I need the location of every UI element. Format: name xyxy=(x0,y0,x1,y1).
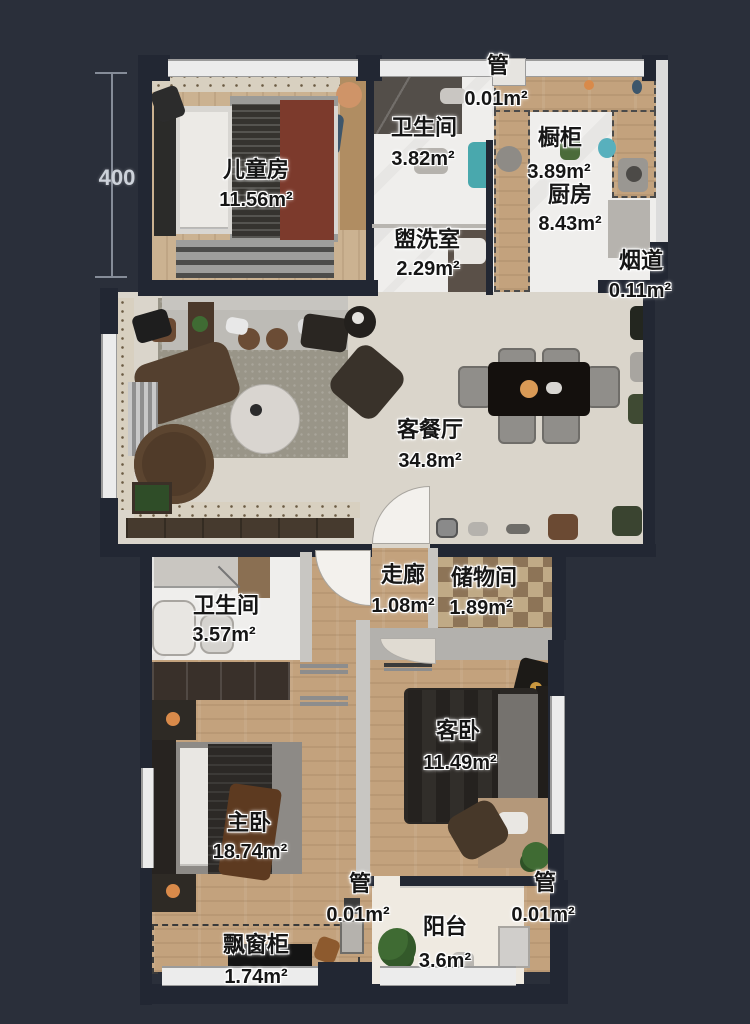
label-living-dining-area: 34.8m² xyxy=(398,451,461,471)
coffee-table-item xyxy=(250,404,262,416)
dimension-tick-bottom xyxy=(95,276,127,278)
wall-storage-right xyxy=(552,548,566,640)
armchair-top xyxy=(300,313,350,353)
kitchen-small-table xyxy=(496,146,522,172)
balcony-washer xyxy=(498,926,530,968)
wall-living-left-top xyxy=(100,288,118,334)
window-top-children xyxy=(168,59,358,77)
master-bed-headboard xyxy=(152,740,176,874)
master-wardrobe xyxy=(152,662,290,700)
wall-children-bath-divider xyxy=(366,70,374,282)
label-pipe-right-area: 0.01m² xyxy=(511,905,574,925)
balcony-door-gap xyxy=(374,876,400,888)
kitchen-cabinet-left xyxy=(494,110,530,292)
label-flue-area: 0.11m² xyxy=(609,281,671,301)
wall-children-bottom xyxy=(138,280,378,296)
label-flue-name: 烟道 xyxy=(619,250,663,272)
label-balcony-area: 3.6m² xyxy=(419,951,471,971)
label-washroom-name: 盥洗室 xyxy=(394,229,460,251)
label-cabinet-area: 3.89m² xyxy=(527,162,590,182)
dining-plate xyxy=(546,382,562,394)
corridor-shelf-2 xyxy=(300,696,348,706)
label-pipe-right-name: 管 xyxy=(534,872,556,894)
decor-basket xyxy=(468,522,488,536)
children-wardrobe xyxy=(176,240,334,278)
label-bathroom-bottom-area: 3.57m² xyxy=(192,625,255,645)
label-balcony-name: 阳台 xyxy=(423,916,467,938)
label-guest-bedroom-area: 11.49m² xyxy=(423,753,496,773)
master-bed-pillows xyxy=(180,748,210,866)
label-washroom-area: 2.29m² xyxy=(396,259,459,279)
wall-living-right xyxy=(643,292,655,546)
window-living-left xyxy=(101,334,117,498)
decor-bench xyxy=(548,514,578,540)
dimension-label: 400 xyxy=(99,165,136,191)
window-master-left xyxy=(141,768,154,868)
label-bay-window-area: 1.74m² xyxy=(224,967,287,987)
floor-plan-canvas: 400 xyxy=(0,0,750,1024)
dining-chair-right xyxy=(586,366,620,408)
lamp-bottom xyxy=(166,884,180,898)
bathtub xyxy=(152,600,196,656)
guest-shelf-2 xyxy=(384,663,432,671)
label-pipe-mid-name: 管 xyxy=(349,873,371,895)
label-guest-bedroom-name: 客卧 xyxy=(436,720,480,742)
label-living-dining-name: 客餐厅 xyxy=(397,419,463,441)
label-bathroom-top-name: 卫生间 xyxy=(391,117,457,139)
wall-washroom-kitchen-divider xyxy=(486,140,493,295)
tv-console xyxy=(126,518,354,538)
wall-left-top-block xyxy=(138,70,152,296)
label-pipe-top-area: 0.01m² xyxy=(464,89,527,109)
side-table-item xyxy=(352,312,364,324)
label-pipe-top-name: 管 xyxy=(487,55,509,77)
label-pipe-mid-area: 0.01m² xyxy=(326,905,389,925)
counter-item-orange xyxy=(584,80,594,90)
bathroom-top-sink xyxy=(440,88,466,104)
label-kitchen-area: 8.43m² xyxy=(538,214,601,234)
wall-balcony-right xyxy=(550,880,568,992)
stool-2 xyxy=(266,328,288,350)
label-corridor-area: 1.08m² xyxy=(371,596,434,616)
wall-living-bottom-right xyxy=(430,544,656,557)
wall-bottom-pier xyxy=(318,962,372,990)
label-master-bedroom-area: 18.74m² xyxy=(213,842,288,862)
coffee-table xyxy=(230,384,300,454)
label-cabinet-name: 橱柜 xyxy=(538,127,582,149)
wall-kitchen-right-outer xyxy=(656,60,668,256)
label-storage-name: 储物间 xyxy=(451,567,517,589)
dimension-tick-top xyxy=(95,72,127,74)
lamp-top xyxy=(166,712,180,726)
counter-item-blue xyxy=(632,80,642,94)
label-bathroom-top-area: 3.82m² xyxy=(391,149,454,169)
corridor-shelf-1 xyxy=(300,664,348,674)
label-bay-window-name: 飘窗柜 xyxy=(223,934,289,956)
label-children-room-name: 儿童房 xyxy=(223,159,289,181)
window-guest-right xyxy=(550,696,565,834)
dining-bowl xyxy=(520,380,538,398)
label-storage-area: 1.89m² xyxy=(449,598,512,618)
bathroom-cabinet xyxy=(238,556,270,598)
balcony-plant xyxy=(378,928,416,968)
console-plant xyxy=(192,316,208,332)
dining-table xyxy=(488,362,590,416)
living-plant-box xyxy=(132,482,172,514)
dining-chair-left xyxy=(458,366,492,408)
kitchen-kettle xyxy=(598,138,616,158)
wall-living-left-bottom xyxy=(100,498,118,550)
decor-frame xyxy=(436,518,458,538)
wall-master-guest-divider xyxy=(356,620,370,880)
wall-bathroom-corridor-divider xyxy=(300,552,312,662)
decor-shoes xyxy=(506,524,530,534)
label-kitchen-name: 厨房 xyxy=(548,184,592,206)
kitchen-sink-basin xyxy=(626,166,642,182)
children-bed-headboard xyxy=(154,104,176,236)
label-children-room-area: 11.56m² xyxy=(219,190,292,210)
label-corridor-name: 走廊 xyxy=(381,564,425,586)
children-stool xyxy=(336,82,362,108)
decor-plant-3 xyxy=(612,506,642,536)
children-bed-pillows xyxy=(180,112,228,229)
guest-plant xyxy=(522,842,550,870)
label-master-bedroom-name: 主卧 xyxy=(227,812,271,834)
label-bathroom-bottom-name: 卫生间 xyxy=(193,595,259,617)
